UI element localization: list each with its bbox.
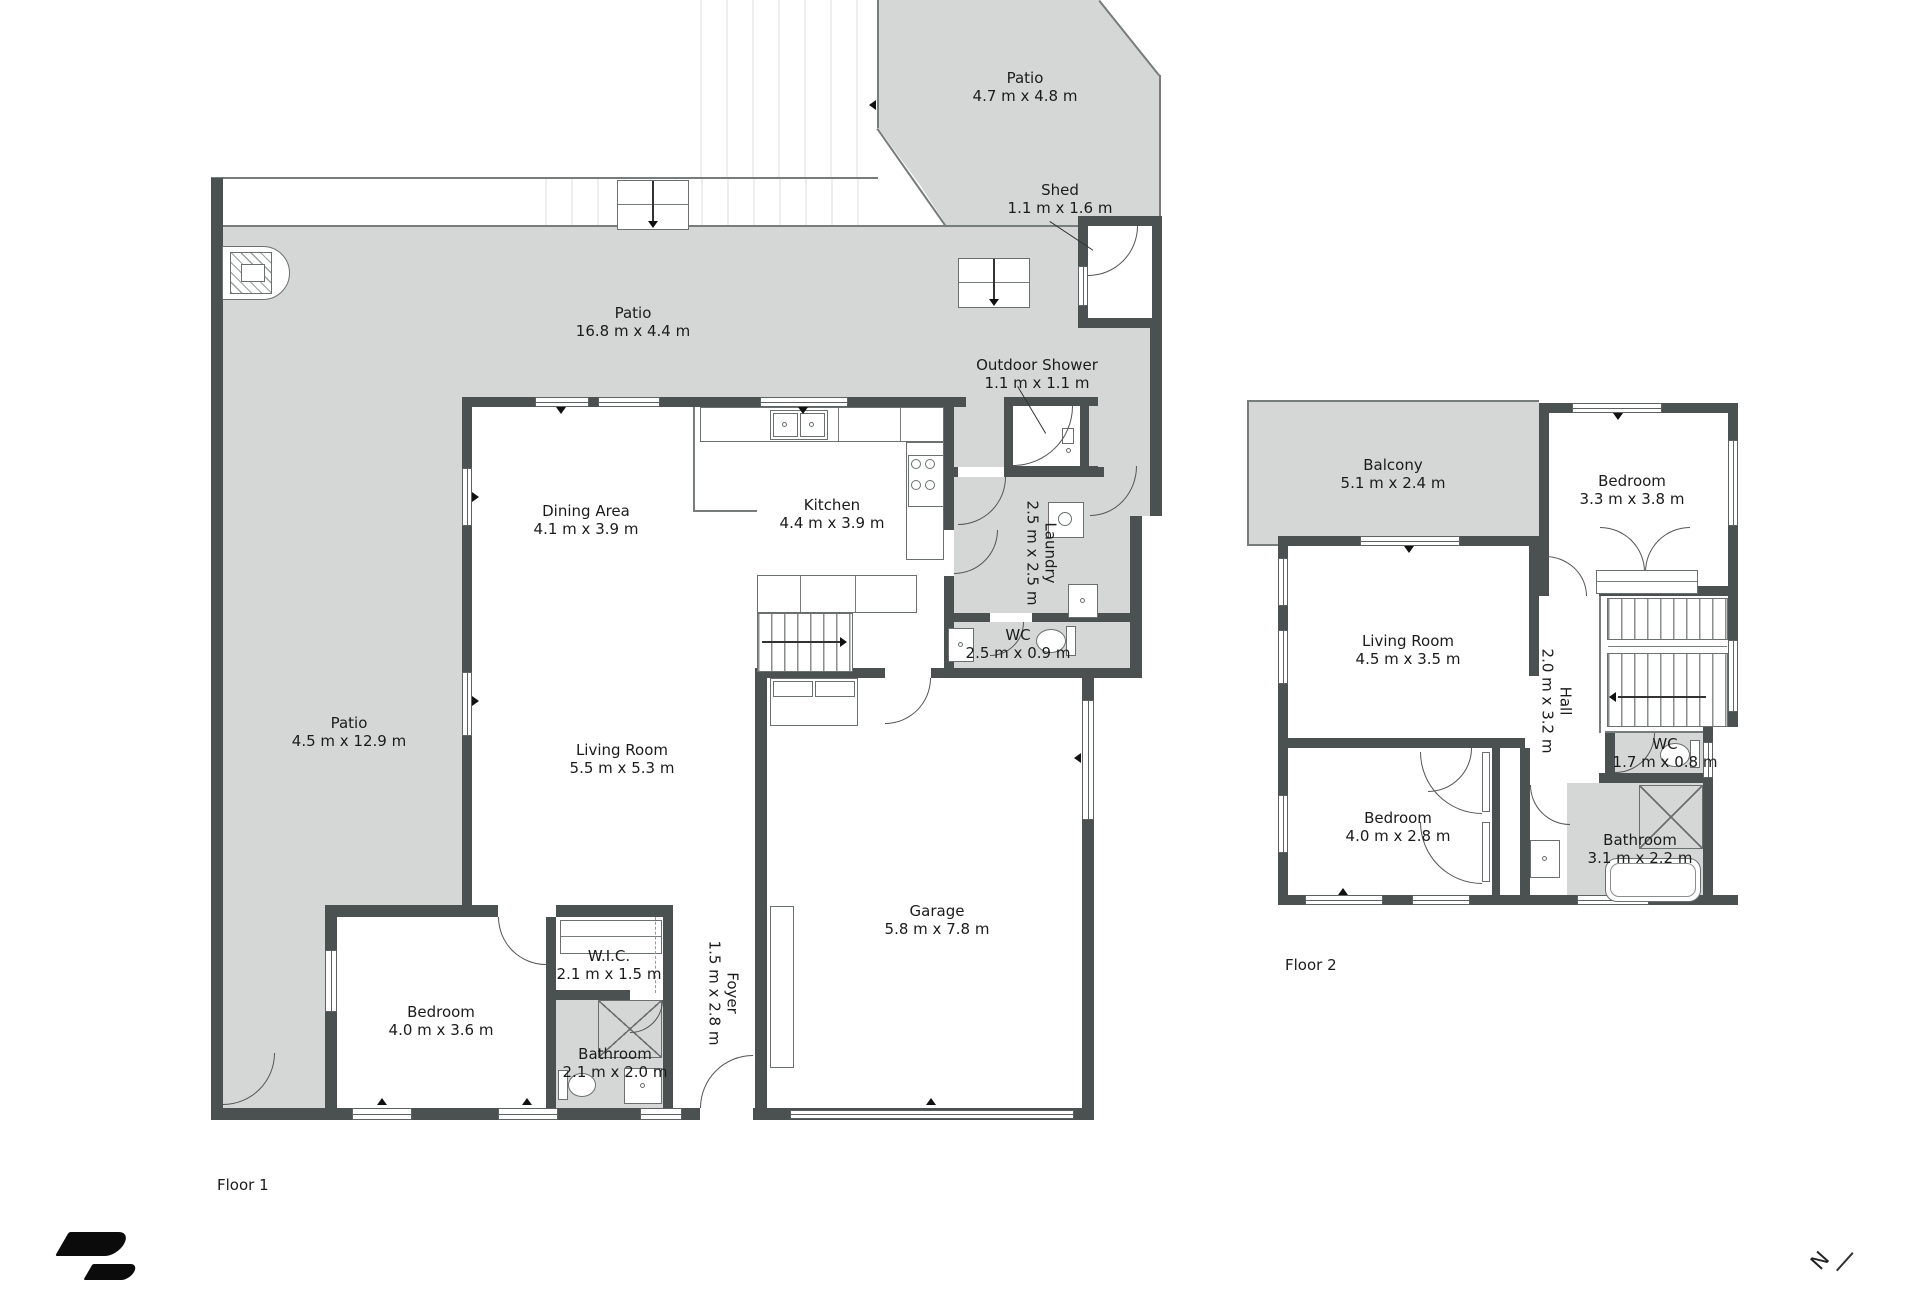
door-arc-bed2a <box>1545 556 1587 596</box>
room-label-dining: Dining Area 4.1 m x 3.9 m <box>534 503 639 538</box>
floor2-label: Floor 2 <box>1285 956 1337 974</box>
window <box>462 468 472 526</box>
room-label-bedroom2-bottom: Bedroom 4.0 m x 2.8 m <box>1346 810 1451 845</box>
door-arc-entry <box>700 1055 753 1108</box>
wall-living-south-b <box>556 905 673 917</box>
room-label-foyer: Foyer 1.5 m x 2.8 m <box>706 941 741 1046</box>
balcony-edge-line <box>1247 544 1280 546</box>
counter-divider <box>900 408 901 441</box>
stair-rail <box>1608 646 1727 647</box>
washer-door <box>1058 512 1072 526</box>
room-dims: 1.1 m x 1.1 m <box>976 375 1098 393</box>
closet-door-leaf <box>1482 822 1490 882</box>
wall-bed2b-top <box>1278 738 1525 748</box>
wall-exterior-left <box>211 178 223 1120</box>
wall-bedroom-wic-divider <box>546 917 556 1108</box>
room-label-bathroom1: Bathroom 2.1 m x 2.0 m <box>563 1046 668 1081</box>
balcony-edge-line <box>1247 400 1249 546</box>
door-gap <box>630 990 663 1000</box>
sink-drain <box>1542 856 1547 861</box>
stair-arrow-head <box>1609 692 1616 702</box>
room-dims: 1.7 m x 0.8 m <box>1613 754 1718 772</box>
stair-arrow-head <box>840 637 847 647</box>
wall-tick <box>1074 753 1081 763</box>
window <box>535 397 589 407</box>
door-arc-bath2 <box>1530 785 1570 825</box>
stove-burner <box>911 480 921 490</box>
stairs2-edge-line <box>1599 596 1601 733</box>
room-label-hall: Hall 2.0 m x 3.2 m <box>1539 649 1574 754</box>
room-label-bathroom2: Bathroom 3.1 m x 2.2 m <box>1588 832 1693 867</box>
room-name: WC <box>1613 736 1718 754</box>
wall-tick <box>377 1098 387 1105</box>
window <box>1078 266 1088 306</box>
closet-door <box>815 681 855 697</box>
room-dims: 1.1 m x 1.6 m <box>1008 200 1113 218</box>
room-name: Dining Area <box>534 503 639 521</box>
brand-logo-icon <box>55 1232 131 1256</box>
room-name: Foyer <box>723 941 741 1046</box>
wall-garage-right <box>1082 678 1094 700</box>
room-name: Living Room <box>1356 633 1461 651</box>
patio-edge-line <box>211 177 878 179</box>
window-slider <box>1360 536 1460 546</box>
room-name: Bathroom <box>1588 832 1693 850</box>
room-dims: 16.8 m x 4.4 m <box>576 323 690 341</box>
area-patio-left <box>223 403 467 915</box>
wall-tick <box>869 100 876 110</box>
room-name: Patio <box>973 70 1078 88</box>
cabinet-row <box>757 575 917 613</box>
wall-bedroom-left <box>325 917 337 1108</box>
closet-door-arc <box>1600 527 1645 572</box>
counter-divider <box>838 408 839 441</box>
sink-drain <box>782 422 787 427</box>
room-name: Garage <box>885 903 990 921</box>
cabinet-divider <box>800 576 801 612</box>
window <box>1305 895 1383 905</box>
sink-drain <box>958 642 963 647</box>
door-gap <box>990 613 1032 622</box>
room-name: Balcony <box>1341 457 1446 475</box>
room-dims: 5.8 m x 7.8 m <box>885 921 990 939</box>
window <box>1278 630 1288 684</box>
room-dims: 5.5 m x 5.3 m <box>570 760 675 778</box>
room-dims: 4.0 m x 2.8 m <box>1346 828 1451 846</box>
room-label-living2: Living Room 4.5 m x 3.5 m <box>1356 633 1461 668</box>
window <box>1728 640 1738 712</box>
room-label-outdoor-shower: Outdoor Shower 1.1 m x 1.1 m <box>976 357 1098 392</box>
room-label-bedroom1: Bedroom 4.0 m x 3.6 m <box>389 1004 494 1039</box>
door-gap <box>700 1108 753 1120</box>
room-dims: 3.3 m x 3.8 m <box>1580 491 1685 509</box>
window <box>598 397 660 407</box>
wall-garage-right <box>1082 820 1094 1120</box>
room-dims: 5.1 m x 2.4 m <box>1341 475 1446 493</box>
room-label-garage: Garage 5.8 m x 7.8 m <box>885 903 990 938</box>
room-name: W.I.C. <box>557 948 662 966</box>
closet-door <box>773 681 813 697</box>
wall-wc1-top <box>944 613 1142 622</box>
room-dims: 1.5 m x 2.8 m <box>706 941 724 1046</box>
room-name: WC <box>966 627 1071 645</box>
wall-tick <box>472 696 479 706</box>
room-name: Patio <box>292 715 406 733</box>
room-dims: 2.0 m x 3.2 m <box>1539 649 1557 754</box>
wall-shed-bottom <box>1078 318 1162 328</box>
room-name: Bathroom <box>563 1046 668 1064</box>
room-name: Outdoor Shower <box>976 357 1098 375</box>
wall-living2-right <box>1529 546 1539 676</box>
window <box>325 950 337 1012</box>
wall-wc2-bottom <box>1599 773 1713 783</box>
wall-patio-right <box>1150 328 1162 516</box>
sink-drain <box>640 1083 645 1088</box>
door-arc-garage <box>885 678 931 724</box>
room-dims: 2.1 m x 2.0 m <box>563 1064 668 1082</box>
closet-door-arc <box>1645 527 1690 572</box>
window <box>1728 440 1738 526</box>
room-label-kitchen: Kitchen 4.4 m x 3.9 m <box>780 497 885 532</box>
room-name: Bedroom <box>389 1004 494 1022</box>
wall-tick <box>556 407 566 414</box>
deck-stripes-band <box>545 179 877 225</box>
room-dims: 4.4 m x 3.9 m <box>780 515 885 533</box>
room-label-wc2: WC 1.7 m x 0.8 m <box>1613 736 1718 771</box>
window <box>498 1108 558 1120</box>
bbq-inner <box>241 264 265 282</box>
room-dims: 4.1 m x 3.9 m <box>534 521 639 539</box>
door-arc-bedroom1 <box>498 917 546 965</box>
wall-wing-right <box>1130 516 1142 678</box>
wall-shower-left <box>1004 397 1013 475</box>
room-name: Shed <box>1008 182 1113 200</box>
room-label-laundry: Laundry 2.5 m x 2.5 m <box>1024 501 1059 606</box>
door-gap <box>944 530 954 576</box>
room-name: Bedroom <box>1580 473 1685 491</box>
stove-burner <box>911 459 921 469</box>
window <box>352 1108 412 1120</box>
steps-arrow-head <box>989 299 999 306</box>
wall-closet-divider <box>1492 748 1500 898</box>
staircase-floor2-upper <box>1607 598 1728 640</box>
cabinet-divider <box>855 576 856 612</box>
wall-garage-left <box>755 670 767 1108</box>
floorplan-page: { "floors": { "floor1": { "label": "Floo… <box>0 0 1920 1280</box>
room-name: Kitchen <box>780 497 885 515</box>
wall-tick <box>798 407 808 414</box>
window <box>1278 558 1288 606</box>
wall-living-south-a <box>325 905 498 917</box>
room-label-bedroom2-top: Bedroom 3.3 m x 3.8 m <box>1580 473 1685 508</box>
steps-arrow-line <box>993 259 995 301</box>
window <box>760 397 848 407</box>
wall-shed-top <box>1078 216 1162 226</box>
door-gap <box>885 668 931 678</box>
wall-shower-right <box>1080 397 1089 475</box>
shower-drain <box>1066 448 1071 453</box>
steps-arrow-head <box>648 221 658 228</box>
room-name: Living Room <box>570 742 675 760</box>
window <box>640 1108 682 1120</box>
patio-edge-line <box>877 0 879 128</box>
closet-rail <box>1597 581 1697 582</box>
wall-shed-right <box>1152 216 1162 328</box>
window <box>1572 403 1662 413</box>
room-dims: 2.5 m x 2.5 m <box>1024 501 1042 606</box>
wall-tick <box>522 1098 532 1105</box>
stove-burner <box>925 480 935 490</box>
brand-logo-icon <box>83 1264 138 1280</box>
room-label-shed: Shed 1.1 m x 1.6 m <box>1008 182 1113 217</box>
wall-tick <box>1613 413 1623 420</box>
wall-vestibule-left <box>1520 748 1530 905</box>
room-dims: 4.7 m x 4.8 m <box>973 88 1078 106</box>
balcony-edge-line <box>1247 400 1539 402</box>
staircase-floor2-lower <box>1607 653 1728 727</box>
wall-tick <box>926 1098 936 1105</box>
garage-cabinet <box>770 906 794 1068</box>
room-dims: 3.1 m x 2.2 m <box>1588 850 1693 868</box>
room-name: Bedroom <box>1346 810 1451 828</box>
room-name: Patio <box>576 305 690 323</box>
room-label-balcony: Balcony 5.1 m x 2.4 m <box>1341 457 1446 492</box>
kitchen-boundary-line <box>693 510 757 512</box>
sink-drain <box>1080 598 1085 603</box>
wardrobe-rail <box>561 936 661 937</box>
wall-tick <box>1338 888 1348 895</box>
steps-arrow-line <box>652 181 654 223</box>
room-label-patio-top: Patio 4.7 m x 4.8 m <box>973 70 1078 105</box>
compass-north: N <box>1798 1238 1854 1294</box>
patio-edge-line <box>1159 75 1161 226</box>
room-dims: 4.5 m x 3.5 m <box>1356 651 1461 669</box>
deck-stripes-top <box>700 0 877 177</box>
sink-drain <box>809 422 814 427</box>
room-dims: 4.5 m x 12.9 m <box>292 733 406 751</box>
room-name: Hall <box>1556 649 1574 754</box>
room-name: Laundry <box>1041 501 1059 606</box>
window <box>1278 795 1288 853</box>
room-label-living1: Living Room 5.5 m x 5.3 m <box>570 742 675 777</box>
room-label-wic: W.I.C. 2.1 m x 1.5 m <box>557 948 662 983</box>
wall-shower-bottom <box>1004 466 1098 475</box>
closet-door-leaf <box>1482 752 1490 812</box>
garage-door <box>790 1110 1074 1119</box>
stair-arrow-line <box>762 641 840 643</box>
room-dims: 4.0 m x 3.6 m <box>389 1022 494 1040</box>
floor1-label: Floor 1 <box>217 1176 269 1194</box>
wall-tick <box>1404 546 1414 553</box>
room-label-patio-main: Patio 16.8 m x 4.4 m <box>576 305 690 340</box>
stove-burner <box>925 459 935 469</box>
room-label-patio-left: Patio 4.5 m x 12.9 m <box>292 715 406 750</box>
stair-arrow-line <box>1618 696 1706 698</box>
room-dims: 2.5 m x 0.9 m <box>966 645 1071 663</box>
kitchen-boundary-line <box>693 407 695 512</box>
window <box>1082 700 1094 820</box>
room-dims: 2.1 m x 1.5 m <box>557 966 662 984</box>
door-gap <box>958 467 1004 477</box>
room-label-wc1: WC 2.5 m x 0.9 m <box>966 627 1071 662</box>
wall-tick <box>472 492 479 502</box>
window <box>1412 895 1470 905</box>
window <box>462 672 472 736</box>
